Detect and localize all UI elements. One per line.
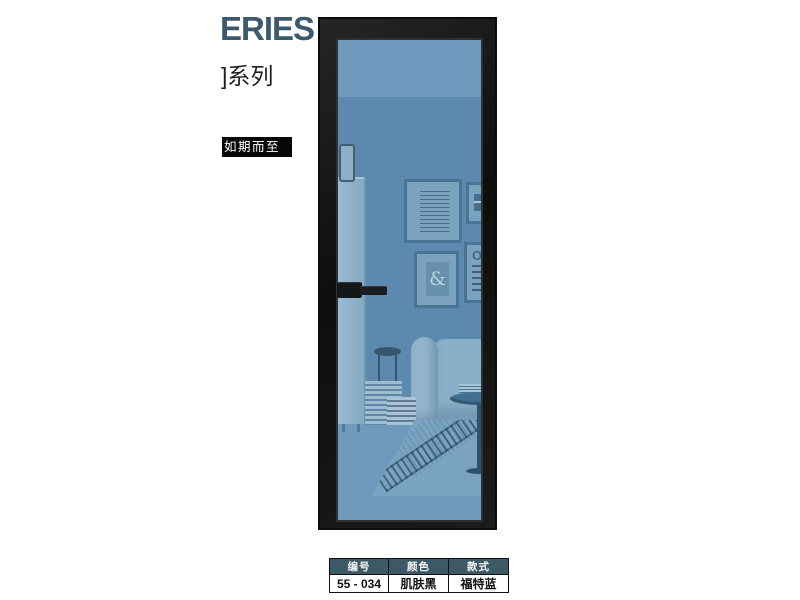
spec-value-cell: 福特蓝 — [448, 575, 508, 592]
door-glass: & O — [338, 40, 481, 520]
ampersand-panel: & — [426, 262, 449, 296]
picture-frame-eye-chart: O — [464, 242, 481, 303]
spec-table: 编号 颜色 款式 55 - 034 肌肤黑 福特蓝 — [329, 558, 509, 593]
sofa — [434, 339, 481, 425]
cabinet — [338, 177, 366, 424]
side-stool — [374, 347, 401, 381]
letter-grid-panel — [474, 194, 481, 211]
typography-text-lines — [420, 191, 450, 233]
eye-chart-letter: O — [472, 249, 481, 262]
series-subtitle: ]系列 — [221, 57, 273, 91]
spec-header-cell: 颜色 — [388, 559, 448, 574]
picture-frame-typography — [404, 179, 462, 243]
series-title: ERIES — [220, 10, 314, 48]
picture-frame-ampersand: & — [414, 251, 459, 308]
spec-value-cell: 肌肤黑 — [388, 575, 448, 592]
stool-legs — [378, 354, 397, 381]
scene-ceiling — [338, 40, 481, 97]
door-handle-bar — [360, 286, 387, 295]
product-page: ERIES ]系列 如期而至 & O — [0, 0, 800, 600]
door-product-photo: & O — [318, 17, 497, 530]
picture-frame-letter-grid — [466, 182, 481, 224]
tagline-badge: 如期而至 — [222, 137, 292, 157]
cabinet-leg — [342, 424, 345, 432]
door-handle — [337, 282, 362, 298]
coffee-table-leg — [477, 404, 481, 470]
cabinet-leg — [357, 424, 360, 432]
ampersand-glyph: & — [429, 268, 446, 290]
spec-header-cell: 款式 — [448, 559, 508, 574]
book-stack — [387, 397, 416, 425]
spec-value-row: 55 - 034 肌肤黑 福特蓝 — [330, 574, 508, 592]
cabinet-lamp — [339, 144, 355, 182]
spec-header-row: 编号 颜色 款式 — [330, 559, 508, 574]
spec-header-cell: 编号 — [330, 559, 388, 574]
spec-value-cell: 55 - 034 — [330, 575, 388, 592]
eye-chart-lines — [472, 265, 481, 291]
